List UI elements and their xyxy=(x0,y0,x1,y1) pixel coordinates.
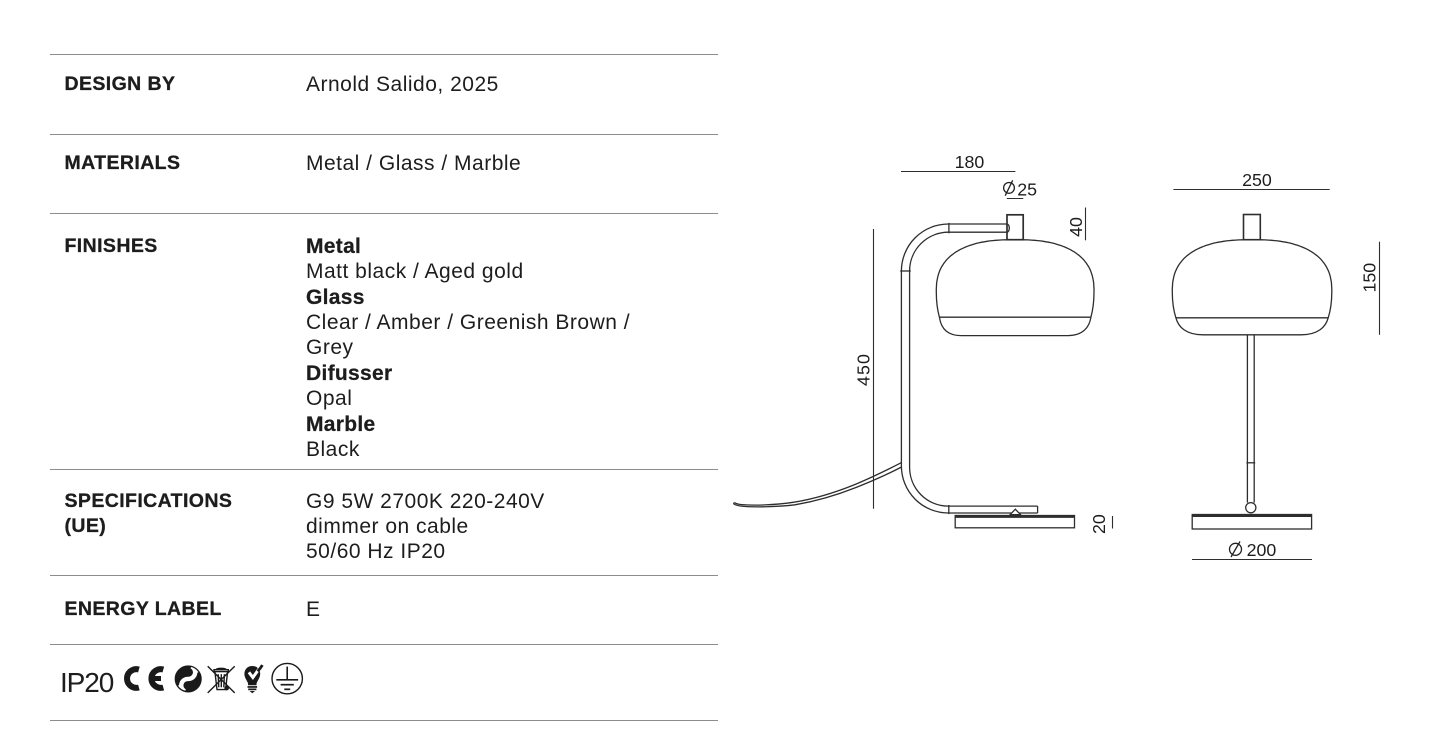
svg-text:IP20: IP20 xyxy=(60,667,114,698)
svg-text:40: 40 xyxy=(1066,217,1086,237)
svg-text:200: 200 xyxy=(1247,540,1277,560)
svg-text:20: 20 xyxy=(1089,514,1109,534)
svg-text:250: 250 xyxy=(1242,170,1272,190)
svg-text:180: 180 xyxy=(955,152,985,172)
svg-text:150: 150 xyxy=(1359,263,1379,293)
svg-text:450: 450 xyxy=(854,353,874,386)
svg-text:25: 25 xyxy=(1017,179,1037,199)
